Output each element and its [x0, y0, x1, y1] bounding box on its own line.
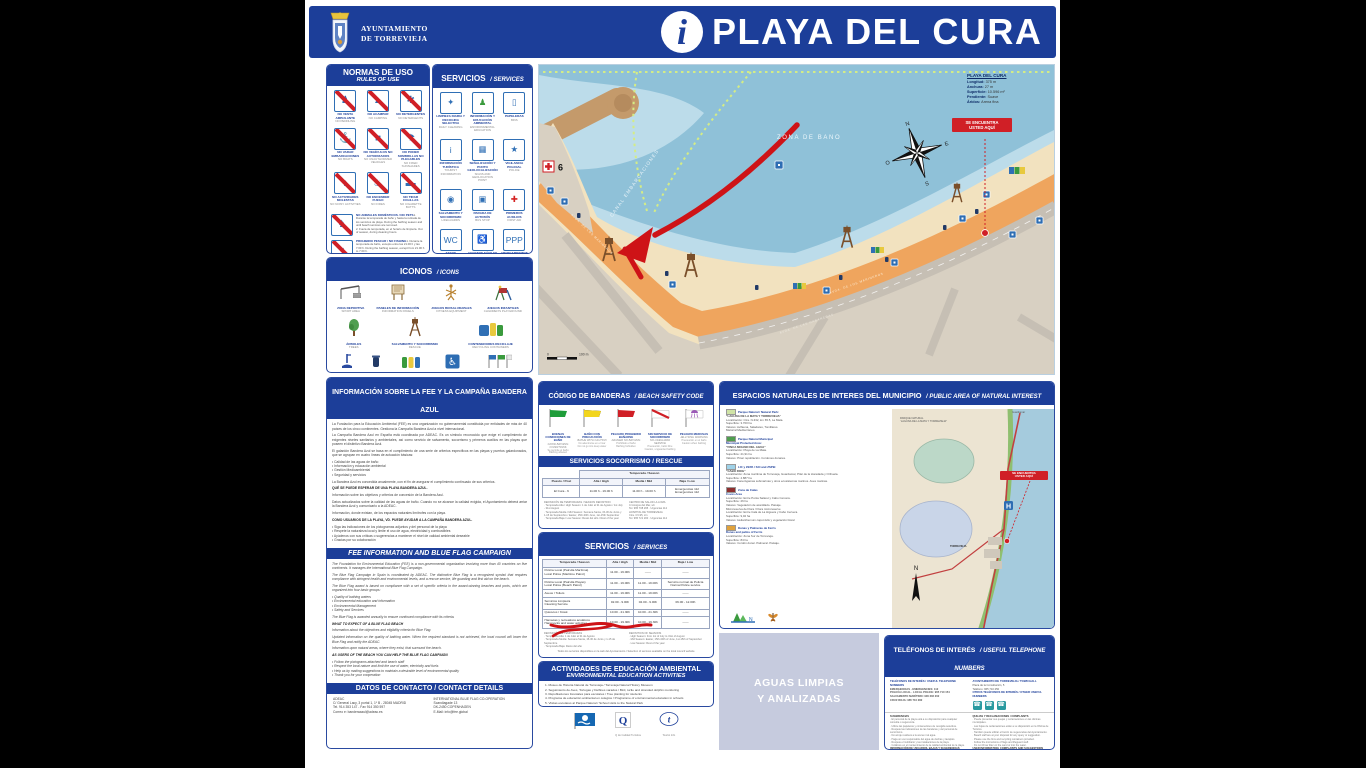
panel-servicios-horarios-header: SERVICIOS / SERVICES	[539, 533, 713, 556]
prohibition-icon: ♆	[331, 240, 353, 254]
service-icon: WC	[440, 229, 462, 251]
service-label-en: POLICE	[500, 169, 529, 172]
prohibition-icon: ♟	[334, 90, 356, 112]
legend-item: ÁRBOLESTREES	[345, 319, 362, 350]
service-item: ◉ SALVAMENTO Y SOCORRISMOLIFEGUARDS	[435, 189, 466, 223]
rule-label-en: NO BOATS	[330, 158, 361, 161]
rule-label-en: NO PEDDLING	[330, 120, 361, 123]
natural-area-item: Parque Natural / Natural Park: “LAGUNA D…	[726, 409, 888, 433]
service-label-en: ENVIRONMENTAL EDUCATION	[467, 126, 497, 133]
service-label-en: SIGNS AND GEOLOCATION POINT	[467, 173, 497, 183]
clean-water-line2: Y ANALIZADAS	[757, 692, 841, 708]
svg-text:Q: Q	[619, 715, 628, 727]
prohibition-item: ▬ NO TIRAR COLILLASNO CIGARETTE BUTTS	[394, 172, 427, 209]
complaints-column: QUEJAS Y RECLAMACIONES / COMPLAINTS · Pu…	[973, 715, 1050, 750]
servicios-grid: ✦ LIMPIEZA DIARIA Y RECOGIDA SELECTIVADA…	[433, 88, 532, 254]
q-calidad-logo: Q Q de Calidad Turística	[615, 712, 641, 737]
service-item: ✦ LIMPIEZA DIARIA Y RECOGIDA SELECTIVADA…	[435, 92, 466, 133]
svg-text:H: H	[1006, 503, 1011, 510]
service-icon: ▣	[472, 189, 494, 211]
laguna-la-mata	[914, 439, 974, 483]
panel-iconos-header: ICONOS / ICONS	[327, 258, 532, 281]
svg-text:♿: ♿	[448, 357, 457, 368]
legend-item: CONTENEDORES RECICLAJERECYCLING CONTAINE…	[467, 319, 514, 350]
panel-codigo-banderas: CÓDIGO DE BANDERAS / BEACH SAFETY CODE B…	[538, 381, 714, 529]
fee-paragraph: The Blue Flag is awarded annually to ens…	[332, 615, 527, 619]
service-label-es: ACCESOS FÁCILES Y SEGUROS	[467, 252, 497, 254]
playground-icon	[493, 284, 513, 301]
normas-grid: ♟ NO VENTA AMBULANTENO PEDDLING ▲ NO ACA…	[327, 86, 429, 212]
rescue-table: Temporada / Season Puesto / Post Alta / …	[542, 470, 709, 498]
information-panel-icon	[389, 284, 407, 301]
panel-espacios-header: ESPACIOS NATURALES DE INTERES DEL MUNICI…	[720, 382, 1054, 405]
rule-label-en: NO NOISY ACTIVITIES	[330, 203, 361, 206]
red-flag-icon	[613, 408, 639, 428]
prohibition-item: ■ NO VEHÍCULOS NO AUTORIZADOSNO UNAUTHOR…	[362, 128, 395, 169]
service-label-en: BINS	[500, 119, 529, 122]
fee-paragraph: La Fundación para la Educación Ambiental…	[332, 422, 527, 431]
fee-paragraph: The Blue Flag award is based on complian…	[332, 584, 527, 593]
service-item: ▦ SEÑALIZACIÓN Y PUNTO GEOLOCALIZACIÓNSI…	[466, 139, 498, 183]
fee-paragraph: Information about the objectives and eli…	[332, 628, 527, 632]
services-footnote: Todos los servicios disponibles en la we…	[539, 649, 713, 654]
beach-map: 6	[538, 64, 1055, 375]
service-hours-row: Servicios Limpieza Cleaning Service 02.0…	[543, 598, 709, 609]
panel-telefonos: TELÉFONOS DE INTERÉS / USEFUL TELEPHONE …	[884, 635, 1055, 750]
flag-item: SIN SERVICIO DE SOCORRISMONO LIFEGUARD S…	[644, 408, 676, 455]
recycling-cluster	[871, 247, 884, 253]
fee-paragraph: COMO USUARIOS DE LA PLAYA, VD. PUEDE AYU…	[332, 518, 527, 522]
beach-info-board: AYUNTAMIENTO DE TORREVIEJA i PLAYA DEL C…	[305, 0, 1060, 768]
health-centre-note: CENTRO DE SALUD LA LOMA C/ Amigos del Ma…	[629, 501, 708, 521]
season-note-es: DEFINICIÓN DE TEMPORADAS · Temporada Alt…	[544, 632, 623, 649]
screenshot-stage: AYUNTAMIENTO DE TORREVIEJA i PLAYA DEL C…	[0, 0, 1366, 768]
fee-paragraph: WHAT TO EXPECT OF A BLUE FLAG BEACH	[332, 622, 527, 626]
info-icon: i	[661, 11, 703, 53]
svg-text:N: N	[914, 566, 918, 572]
foot-shower-icon	[340, 353, 354, 369]
fitness-equipment-icon	[443, 284, 459, 301]
panel-normas-de-uso: NORMAS DE USO RULES OF USE ♟ NO VENTA AM…	[326, 64, 430, 254]
service-hours-row: Quioscos / Kiosk 10.00 - 21.30h 10.00 - …	[543, 609, 709, 617]
panel-normas-header: NORMAS DE USO RULES OF USE	[327, 65, 429, 86]
fee-paragraph: QUÉ SE PUEDE ESPERAR DE UNA PLAYA BANDER…	[332, 486, 527, 490]
flag-item: PELIGRO MEDUSASJELLYFISH WARNINGPrecauci…	[678, 408, 710, 455]
prohibition-item: ⚓ NO VARAR EMBARCACIONESNO BOATS	[329, 128, 362, 169]
fee-text-es: La Fundación para la Educación Ambiental…	[327, 419, 532, 547]
fee-paragraph: La Campaña Bandera Azul en España está c…	[332, 433, 527, 446]
clean-water-line1: AGUAS LIMPIAS	[754, 676, 844, 692]
flags-certifications-icon	[486, 353, 512, 369]
yellow-flag-icon	[579, 408, 605, 428]
legend-item: ZONA DEPORTIVASPORT AREA	[336, 285, 365, 314]
phone-icon: ☎	[997, 701, 1006, 710]
certification-logos: Q Q de Calidad Turística t Tourist Info	[538, 712, 714, 737]
fee-english-subheader: FEE INFORMATION AND BLUE FLAG CAMPAIGN	[327, 548, 532, 559]
service-label-en: FIRST AID	[500, 219, 529, 222]
fee-paragraph: AS USERS OF THE BEACH YOU CAN HELP THE B…	[332, 653, 527, 657]
header-bar: AYUNTAMIENTO DE TORREVIEJA i PLAYA DEL C…	[309, 6, 1056, 58]
natural-area-item: Zona de Calas Coves Area Localización: E…	[726, 487, 888, 522]
service-icon: ✦	[440, 92, 462, 114]
rule-label-en: NO FIXED SUNSHADES	[395, 162, 426, 169]
panel-banderas-header: CÓDIGO DE BANDERAS / BEACH SAFETY CODE	[539, 382, 713, 405]
recycling-cluster	[793, 283, 806, 289]
legend-item: PAPELERABIN	[367, 354, 386, 373]
service-label-en: LIFEGUARDS	[436, 219, 465, 222]
phone-icon: ☎	[973, 701, 982, 710]
recycling-bins-icon	[401, 354, 421, 369]
service-icon: ▦	[472, 139, 494, 161]
panel-telefonos-header: TELÉFONOS DE INTERÉS / USEFUL TELEPHONE …	[885, 636, 1054, 677]
mini-map-graphic: H N	[892, 409, 1054, 629]
mini-you-are-here-box: SE ENCUENTRA USTED AQUÍ	[1000, 471, 1048, 480]
page-title: PLAYA DEL CURA	[712, 11, 1042, 53]
laguna-torrevieja	[900, 501, 972, 557]
svg-text:6: 6	[558, 163, 563, 173]
service-label-en: BUS STOP	[467, 219, 497, 222]
panel-actividades: ACTIVIDADES DE EDUCACIÓN AMBIENTAL ENVIR…	[538, 661, 714, 707]
service-icon: ◉	[440, 189, 462, 211]
svg-text:100 m: 100 m	[579, 353, 589, 357]
prohibition-extra-item: ♆ PROHIBIDO PESCAR / NO FISHING1. Durant…	[327, 238, 429, 254]
blue-flag-logo	[573, 712, 597, 735]
activities-list: 1. Museo de Historia Natural de Torrevie…	[539, 681, 713, 707]
prohibition-item: ✱ NO DETERGENTESNO DETERGENTS	[394, 90, 427, 124]
natural-areas-legend: Parque Natural / Natural Park: “LAGUNA D…	[720, 405, 892, 629]
service-label-es: APARCAMIENTOS RESERVADOS	[500, 252, 529, 254]
service-item: ✚ PRIMEROS AUXILIOSFIRST AID	[499, 189, 530, 223]
rule-label-en: NO FIRES	[363, 203, 394, 206]
fee-paragraph: Información sobre los objetivos y criter…	[332, 493, 527, 497]
prohibition-icon: ▲	[367, 90, 389, 112]
service-label-en: TOURIST INFORMATION	[436, 169, 465, 176]
litter-bin-icon	[371, 354, 381, 369]
green-flag-icon	[545, 408, 571, 428]
fee-paragraph: La Bandera Azul es concedida anualmente,…	[332, 480, 527, 484]
service-icon: PPP	[503, 229, 525, 251]
no-lifeguard-flag-icon	[647, 408, 673, 428]
fee-paragraph: • Quality of bathing waters • Environmen…	[332, 595, 527, 612]
tree-icon	[347, 319, 361, 337]
svg-text:N: N	[749, 617, 753, 623]
flag-item: BUENAS CONDICIONES DE BAÑOGOOD BATHING C…	[542, 408, 574, 455]
legend-item: JUEGOS INFANTILESCHILDREN'S PLAYGROUND	[483, 284, 523, 314]
lifeguard-tower-icon	[406, 317, 424, 337]
natural-area-item: Dunas y Palmeras de Ferris Dunes and pal…	[726, 525, 888, 546]
prohibition-icon: ■	[367, 128, 389, 150]
panel-servicios-header: SERVICIOS / SERVICES	[433, 65, 532, 88]
service-item: ♿ ACCESOS FÁCILES Y SEGUROSEASY AND SAFE…	[466, 229, 498, 254]
season-note-en: DEFINITION OF SEASONS · High Season: fro…	[629, 632, 708, 649]
legend-item: BANDERAS Y CERTIFICACIONESFLAGS AND CERT…	[473, 353, 525, 373]
prohibition-icon: ⚓	[334, 128, 356, 150]
legend-item: ♿ ASEO ADAPTADOADAPTED TOILET	[438, 354, 467, 373]
rule-label-en: NO CIGARETTE BUTTS	[395, 203, 426, 210]
phone-numbers-right: AYUNTAMIENTO DE TORREVIEJA / TOWN HALL P…	[973, 680, 1050, 710]
rule-label-en: NO UNAUTHORIZED VEHICLES	[363, 158, 394, 165]
prohibition-extra-item: ♞ NO ANIMALES DOMÉSTICOS / NO PETS1. Dur…	[327, 212, 429, 238]
service-icon: ★	[503, 139, 525, 161]
fee-paragraph: • Calidad de las aguas de baño • Informa…	[332, 460, 527, 477]
fee-paragraph: El galardón Bandera Azul se basa en el c…	[332, 449, 527, 458]
service-item: PPP APARCAMIENTOS RESERVADOSRESERVED PAR…	[499, 229, 530, 254]
fee-paragraph: Updated information on the quality of ba…	[332, 635, 527, 644]
prohibition-item: ☂ NO PONER SOMBRILLAS NO PLEGABLESNO FIX…	[394, 128, 427, 169]
phone-icon: ☎	[985, 701, 994, 710]
panel-iconos: ICONOS / ICONS ZONA DEPORTIVASPORT AREA …	[326, 257, 533, 373]
service-hours-row: Hamacas y recreativos acuáticos Hammocks…	[543, 617, 709, 628]
service-icon: ♟	[472, 92, 494, 114]
suggestions-column: SUGERENCIAS · El personal de la playa es…	[890, 715, 967, 750]
normas-extra-rules: ♞ NO ANIMALES DOMÉSTICOS / NO PETS1. Dur…	[327, 212, 429, 254]
fee-paragraph: Información, donde existan, de los espac…	[332, 511, 527, 515]
rescue-subheader: SERVICIOS SOCORRISMO / RESCUE	[539, 456, 713, 467]
service-item: ♟ INFORMACIÓN Y EDUCACIÓN AMBIENTALENVIR…	[466, 92, 498, 133]
legend-item: PANELES DE INFORMACIÓNINFORMATION PANELS	[376, 284, 421, 314]
panel-fee-header: INFORMACIÓN SOBRE LA FEE Y LA CAMPAÑA BA…	[327, 378, 532, 419]
fee-paragraph: The Blue Flag Campaign in Spain is coord…	[332, 573, 527, 582]
mini-here-dot	[1004, 538, 1009, 543]
flags-row: BUENAS CONDICIONES DE BAÑOGOOD BATHING C…	[539, 405, 713, 456]
prohibition-icon: ☂	[400, 128, 422, 150]
fee-paragraph: The Foundation for Environmental Educati…	[332, 562, 527, 571]
panel-actividades-header: ACTIVIDADES DE EDUCACIÓN AMBIENTAL ENVIR…	[539, 662, 713, 681]
services-hours-table: Temporada / Season Alta / High Media / M…	[542, 559, 709, 629]
fee-paragraph: • Follow the pictograms attached and bea…	[332, 660, 527, 677]
service-label-es: ASEOS ADAPTADOS	[436, 252, 465, 254]
prohibition-icon: ♞	[331, 214, 353, 236]
natural-area-item: LIC y ZEPA / SCI and ZSPB: “CABO ROIG” L…	[726, 464, 888, 485]
service-icon: ♿	[472, 229, 494, 251]
municipality-name: AYUNTAMIENTO DE TORREVIEJA	[361, 24, 428, 44]
prohibition-item: ▲ NO ACAMPARNO CAMPING	[362, 90, 395, 124]
prohibition-icon: ♨	[367, 172, 389, 194]
fee-paragraph: • Siga las indicaciones de los pictogram…	[332, 525, 527, 542]
service-icon: ✚	[503, 189, 525, 211]
service-icon: i	[440, 139, 462, 161]
first-aid-marker: 6	[543, 161, 563, 173]
legend-item: SALVAMENTO Y SOCORRISMORESCUE	[391, 317, 439, 350]
legend-item: LAVAPIÉSFOOT SHOWERS	[334, 353, 360, 373]
adapted-toilet-icon: ♿	[445, 354, 460, 369]
prohibition-item: ♪ NO ACTIVIDADES MOLESTASNO NOISY ACTIVI…	[329, 172, 362, 209]
clean-water-box: AGUAS LIMPIAS Y ANALIZADAS	[719, 633, 879, 750]
prohibition-item: ♟ NO VENTA AMBULANTENO PEDDLING	[329, 90, 362, 124]
service-hours-row: Policía Local (Patrulla Playas) Local Po…	[543, 579, 709, 590]
fee-text-en: The Foundation for Environmental Educati…	[327, 559, 532, 683]
service-hours-row: Aseos / Toilets 11.00 - 19.00h 11.00 - 1…	[543, 590, 709, 598]
rule-label-en: NO DETERGENTS	[395, 117, 426, 120]
prohibition-icon: ▬	[400, 172, 422, 194]
flag-item: PELIGRO PROHIBIDO BAÑARSEDANGER NO BATHI…	[610, 408, 642, 455]
sport-net-icon	[339, 285, 363, 301]
espacios-logos: N	[730, 610, 780, 624]
service-item: ▣ PARADA DE AUTOBÚSBUS STOP	[466, 189, 498, 223]
natural-parks-logo: N	[730, 610, 756, 624]
service-label-en: DAILY CLEANING	[436, 126, 465, 129]
service-item: ▯ PAPELERASBINS	[499, 92, 530, 133]
jellyfish-flag-icon	[681, 408, 707, 428]
recycling-cluster	[1009, 167, 1025, 174]
service-icon: ▯	[503, 92, 525, 114]
recycling-containers-icon	[478, 319, 504, 337]
panel-servicios-iconos: SERVICIOS / SERVICES ✦ LIMPIEZA DIARIA Y…	[432, 64, 533, 254]
panel-espacios-naturales: ESPACIOS NATURALES DE INTERES DEL MUNICI…	[719, 381, 1055, 629]
contact-details-header: DATOS DE CONTACTO / CONTACT DETAILS	[327, 683, 532, 694]
beach-map-graphic: 6	[539, 65, 1055, 375]
prohibition-icon: ✱	[400, 90, 422, 112]
rule-text: 1. Durante la temporada de baño y hasta …	[356, 213, 423, 235]
flag-item: BAÑO CON PRECAUCIÓNBATHE WITH CAUTIONNo …	[576, 408, 608, 455]
panel-fee-bandera-azul: INFORMACIÓN SOBRE LA FEE Y LA CAMPAÑA BA…	[326, 377, 533, 749]
torrevieja-crest-logo	[325, 11, 355, 53]
service-hours-row: Policía Local (Patrulla Marítima) Local …	[543, 567, 709, 578]
service-item: ★ VIGILANCIA POLICIALPOLICE	[499, 139, 530, 183]
butterfly-logo	[766, 611, 780, 623]
panel-servicios-horarios: SERVICIOS / SERVICES Temporada / Season …	[538, 532, 714, 658]
you-are-here-dot	[982, 230, 989, 237]
svg-text:0: 0	[547, 353, 549, 357]
natural-area-item: Parque Natural Municipal Municipal Prote…	[726, 436, 888, 460]
fee-paragraph: Information upon natural areas, where th…	[332, 646, 527, 650]
contact-blue-flag: INTERNATIONAL BLUE FLAG CO-OPERATION Sca…	[434, 697, 527, 714]
legend-item: JUEGOS BIOSALUDABLESFITNESS EQUIPMENT	[430, 284, 472, 314]
legend-item: PAPELERAS RECICLAJERECYCLING BINS	[392, 354, 431, 373]
tourist-info-logo: t Tourist Info	[659, 712, 679, 737]
fee-paragraph: Datos actualizados sobre la calidad de l…	[332, 500, 527, 509]
service-item: i INFORMACIÓN TURÍSTICATOURIST INFORMATI…	[435, 139, 466, 183]
prohibition-icon: ♪	[334, 172, 356, 194]
municipality-mini-map: H N PARQUE NATURAL “LAGUNA DE LA MATA Y …	[892, 409, 1054, 629]
phone-numbers-left: TELÉFONOS DE INTERÉS / USEFUL TELEPHONE …	[890, 680, 967, 710]
rule-label-en: NO CAMPING	[363, 117, 394, 120]
contact-adeac: ADEAC C/ General Lacy, 3 portal 1, 1º B …	[333, 697, 426, 714]
prohibition-item: ♨ NO ENCENDER FUEGONO FIRES	[362, 172, 395, 209]
service-item: WC ASEOS ADAPTADOSADAPTED TOILETS	[435, 229, 466, 254]
season-definition-note: DEFINICIÓN DE TEMPORADAS / SEASON DEFINI…	[544, 501, 623, 521]
